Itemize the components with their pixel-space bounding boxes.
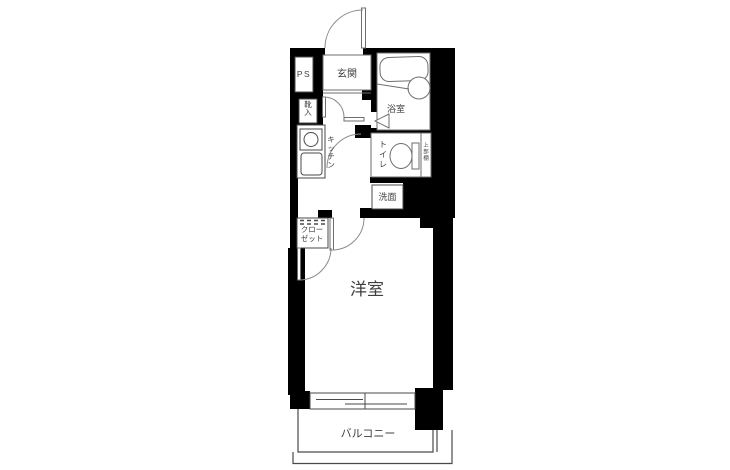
entrance-door-leaf <box>362 8 366 48</box>
hall-door-arc-upper <box>324 97 344 117</box>
wall-right-lower <box>433 218 453 390</box>
wall-toilet-bottom <box>370 177 430 183</box>
label-entrance: 玄関 <box>337 67 357 80</box>
label-closet-line2: ゼット <box>301 233 324 243</box>
hall-door-leaf <box>344 118 364 122</box>
label-closet-line1: クロー <box>301 225 324 234</box>
wall-left-lower <box>288 248 305 395</box>
bath-basin-icon <box>408 77 430 99</box>
toilet-tank <box>412 143 419 169</box>
label-western-room: 洋室 <box>350 280 384 299</box>
label-upper-shelf: 上部棚 <box>423 141 429 162</box>
label-pipe-space: PS <box>297 69 311 79</box>
label-washstand: 洗面 <box>378 191 396 202</box>
wall-top-left <box>290 48 325 56</box>
wall-right-upper <box>430 48 455 218</box>
wall-right-bottom-block <box>415 388 443 430</box>
label-kitchen: キッチン <box>327 135 335 170</box>
room-door-arc <box>332 218 364 250</box>
entrance-door-arc <box>325 10 363 48</box>
kitchen-burner-icon <box>304 133 318 147</box>
hall-door-leaf-upper <box>323 97 326 117</box>
wall-room-notch <box>420 218 433 228</box>
wall-room-door-stub <box>318 210 332 218</box>
floor-plan-drawing: PS 玄関 浴室 靴入 キッチン トイレ 上部棚 洗面 クロー ゼット 洋室 バ… <box>0 0 730 470</box>
floor-plan-canvas: PS 玄関 浴室 靴入 キッチン トイレ 上部棚 洗面 クロー ゼット 洋室 バ… <box>0 0 730 470</box>
label-toilet: トイレ <box>379 140 387 169</box>
wall-stub-toilet <box>355 125 371 138</box>
label-bathroom: 浴室 <box>387 103 405 114</box>
window-sliding <box>310 393 415 409</box>
label-shoe-cabinet: 靴入 <box>304 99 312 117</box>
label-balcony: バルコニー <box>341 427 396 440</box>
toilet-bowl <box>390 144 412 169</box>
wall-left-bottom-block <box>290 391 310 409</box>
closet-door-leaf <box>298 248 301 280</box>
kitchen-sink <box>301 153 322 175</box>
room-door-leaf <box>330 218 334 250</box>
wall-washstand-right <box>403 183 430 210</box>
